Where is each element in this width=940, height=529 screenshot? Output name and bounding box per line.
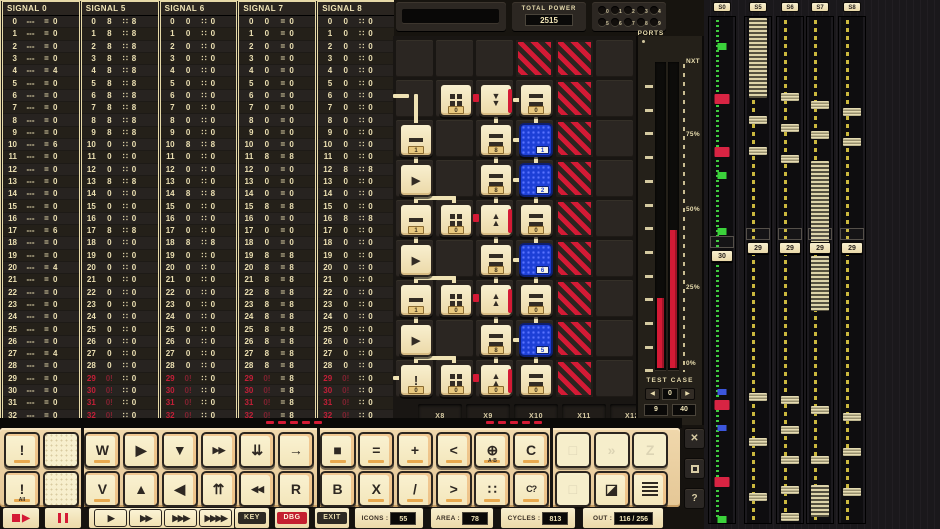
signal-row-index: 15 bbox=[239, 202, 256, 211]
signal-row-separator: = bbox=[41, 152, 52, 161]
signal-row: 270∷0 bbox=[161, 348, 237, 359]
signal-row-input: --- bbox=[20, 361, 41, 370]
tile-value-label: 0 bbox=[408, 386, 424, 394]
counter-value: 55 bbox=[390, 512, 416, 525]
signal-row: 21---=0 bbox=[3, 274, 79, 285]
key-frame-2[interactable]: □ bbox=[555, 471, 591, 507]
signal-row: 250∷0 bbox=[161, 323, 237, 334]
track-guide-line bbox=[846, 20, 849, 520]
port-socket[interactable]: 7 bbox=[624, 17, 637, 29]
track-value-badge[interactable]: 29 bbox=[809, 242, 831, 254]
track-value-badge[interactable]: 29 bbox=[841, 242, 863, 254]
signal-row-index: 31 bbox=[82, 398, 99, 407]
key-up[interactable]: ▲ bbox=[123, 471, 159, 507]
signal-row-index: 24 bbox=[3, 312, 20, 321]
signal-row-separator: ∷ bbox=[120, 263, 131, 272]
signal-row-separator: ∷ bbox=[199, 275, 210, 284]
signal-row-output: 0 bbox=[367, 398, 394, 407]
signal-row-index: 25 bbox=[82, 325, 99, 334]
key-frame[interactable]: □ bbox=[555, 432, 591, 468]
signal-row: 10=0 bbox=[239, 28, 315, 39]
signal-row-separator: ∷ bbox=[199, 17, 210, 26]
tile-blue[interactable]: 1 bbox=[519, 123, 553, 157]
signal-row-index: 3 bbox=[82, 54, 99, 63]
signal-row-index: 1 bbox=[161, 29, 178, 38]
signal-row-separator: ∷ bbox=[199, 349, 210, 358]
signal-row: 130=0 bbox=[239, 176, 315, 187]
signal-row-input: --- bbox=[20, 214, 41, 223]
tile-equals[interactable]: 0 bbox=[519, 203, 553, 237]
signal-row-index: 8 bbox=[82, 116, 99, 125]
key-combine[interactable]: ⊕A·B bbox=[474, 432, 510, 468]
speed-button-1[interactable]: ▶ bbox=[94, 509, 127, 527]
circuit-grid[interactable]: 0▼▼0181▶8210▲▲0▶8610▲▲0▶85!00▲▲00X8X9X10… bbox=[393, 36, 636, 425]
signal-row-index: 26 bbox=[82, 337, 99, 346]
key-skip[interactable]: » bbox=[594, 432, 630, 468]
grid-cell[interactable] bbox=[596, 80, 633, 117]
track-handle[interactable] bbox=[710, 236, 734, 248]
key-rewind[interactable]: ◀◀ bbox=[239, 471, 275, 507]
signal-row: 278=8 bbox=[239, 348, 315, 359]
test-case-prev-button[interactable]: ◀ bbox=[645, 388, 660, 400]
test-case-next-button[interactable]: ▶ bbox=[680, 388, 695, 400]
track-value-badge[interactable]: 29 bbox=[747, 242, 769, 254]
signal-row-index: 4 bbox=[239, 66, 256, 75]
signal-row-output: 0 bbox=[131, 325, 158, 334]
signal-row-output: 8 bbox=[288, 361, 315, 370]
signal-row-output: 0 bbox=[52, 251, 79, 260]
debug-badge[interactable]: DBG bbox=[277, 512, 306, 524]
tile-equals[interactable]: 8 bbox=[479, 243, 513, 277]
key-x[interactable]: X bbox=[358, 471, 394, 507]
signal-row: 50∷0 bbox=[318, 77, 394, 88]
app-root: SIGNAL 00---=01---=02---=03---=04---=45-… bbox=[0, 0, 940, 529]
signal-row-input: 0 bbox=[335, 275, 356, 284]
signal-row-separator: ∷ bbox=[199, 116, 210, 125]
port-socket[interactable]: 0 bbox=[598, 5, 611, 17]
signal-row-input: 0! bbox=[178, 386, 199, 395]
signal-row-output: 0 bbox=[52, 116, 79, 125]
signal-row-index: 2 bbox=[318, 42, 335, 51]
led-indicator bbox=[266, 421, 274, 424]
port-socket[interactable]: 1 bbox=[611, 5, 624, 17]
tile-equals[interactable]: 0 bbox=[519, 83, 553, 117]
track-handle[interactable] bbox=[746, 228, 770, 240]
signal-row-input: 8 bbox=[256, 263, 277, 272]
signal-row: 160∷0 bbox=[161, 213, 237, 224]
signal-row-index: 1 bbox=[239, 29, 256, 38]
signal-row: 270∷0 bbox=[82, 348, 158, 359]
gauge-scale-label: 50% bbox=[686, 206, 706, 213]
signal-row: 60=0 bbox=[239, 90, 315, 101]
signal-row: 180∷0 bbox=[318, 237, 394, 248]
blocked-cell[interactable] bbox=[556, 200, 593, 237]
track-header-s5: S5 bbox=[749, 2, 767, 12]
signal-row-output: 8 bbox=[131, 103, 158, 112]
signal-row: 290!∷0 bbox=[318, 373, 394, 384]
signal-row: 29---=0 bbox=[3, 373, 79, 384]
transport-pause[interactable] bbox=[44, 507, 82, 529]
track-handle[interactable] bbox=[808, 228, 832, 240]
key-underline-accent bbox=[14, 460, 30, 463]
port-hole-icon bbox=[611, 18, 619, 26]
signal-row-output: 8 bbox=[210, 140, 237, 149]
signal-row-separator: ∷ bbox=[120, 374, 131, 383]
signal-track-s6[interactable]: 29 bbox=[776, 16, 804, 524]
signal-row: 20=0 bbox=[239, 41, 315, 52]
key-contrast[interactable]: ◪ bbox=[594, 471, 630, 507]
signal-row-input: --- bbox=[20, 54, 41, 63]
blocked-cell[interactable] bbox=[556, 280, 593, 317]
signal-row-separator: ∷ bbox=[120, 251, 131, 260]
signal-row: 170∷0 bbox=[318, 225, 394, 236]
key-mode-badge-panel: KEY bbox=[234, 507, 270, 529]
blocked-cell[interactable] bbox=[516, 40, 553, 77]
port-socket[interactable]: 8 bbox=[637, 17, 650, 29]
signal-row-output: 0 bbox=[52, 238, 79, 247]
speed-button-4[interactable]: ▶▶▶▶ bbox=[199, 509, 232, 527]
port-number: 1 bbox=[619, 9, 622, 15]
signal-row-separator: ∷ bbox=[199, 374, 210, 383]
signal-row: 158=8 bbox=[239, 200, 315, 211]
key-left[interactable]: ◀ bbox=[162, 471, 198, 507]
signal-row-output: 0 bbox=[52, 214, 79, 223]
tile-chevup[interactable]: ▲▲0 bbox=[479, 363, 513, 397]
signal-row-input: --- bbox=[20, 202, 41, 211]
track-mark bbox=[718, 425, 727, 431]
grid-cell[interactable] bbox=[436, 40, 473, 77]
signal-row-index: 12 bbox=[82, 165, 99, 174]
port-hole-icon bbox=[611, 6, 619, 14]
display-inset bbox=[402, 9, 499, 23]
signal-row-separator: ∷ bbox=[356, 42, 367, 51]
gauge-tick bbox=[645, 275, 653, 278]
signal-row-output: 0 bbox=[367, 288, 394, 297]
signal-row-input: --- bbox=[20, 128, 41, 137]
signal-row: 220∷0 bbox=[161, 287, 237, 298]
grid-cell[interactable] bbox=[596, 40, 633, 77]
signal-row-input: 0 bbox=[256, 91, 277, 100]
signal-row-input: 0 bbox=[178, 116, 199, 125]
signal-track-s5[interactable]: 29 bbox=[744, 16, 772, 524]
key-dots[interactable]: ∷ bbox=[474, 471, 510, 507]
key-z[interactable]: Z bbox=[632, 432, 668, 468]
frame-button[interactable] bbox=[684, 458, 705, 479]
signal-track-s7[interactable]: 29 bbox=[806, 16, 834, 524]
signal-row: 38∷8 bbox=[82, 53, 158, 64]
signal-row-output: 0 bbox=[367, 17, 394, 26]
tile-chevup[interactable]: ▲▲ bbox=[479, 283, 513, 317]
blocked-cell[interactable] bbox=[556, 160, 593, 197]
signal-row-separator: ∷ bbox=[356, 189, 367, 198]
key-mode-badge[interactable]: KEY bbox=[238, 512, 266, 524]
signal-row-index: 21 bbox=[239, 275, 256, 284]
signal-row-output: 8 bbox=[131, 177, 158, 186]
track-handle[interactable] bbox=[840, 228, 864, 240]
led-strip bbox=[0, 418, 682, 428]
track-mark bbox=[843, 448, 861, 456]
close-button[interactable]: ✕ bbox=[684, 428, 705, 449]
exit-badge[interactable]: EXIT bbox=[317, 512, 347, 524]
gauge-tick bbox=[645, 132, 653, 135]
key-doc[interactable] bbox=[632, 471, 668, 507]
tile-arrow[interactable]: ▶ bbox=[399, 323, 433, 357]
key-c-question[interactable]: C? bbox=[513, 471, 549, 507]
tile-chevdown[interactable]: ▼▼ bbox=[479, 83, 513, 117]
grid-cell[interactable] bbox=[436, 240, 473, 277]
key-w[interactable]: W bbox=[84, 432, 120, 468]
key-less-than[interactable]: < bbox=[436, 432, 472, 468]
signal-row-input: 0 bbox=[178, 66, 199, 75]
signal-row-index: 5 bbox=[3, 79, 20, 88]
grid-cell[interactable] bbox=[596, 320, 633, 357]
signal-row-output: 0 bbox=[367, 177, 394, 186]
blocked-cell[interactable] bbox=[556, 80, 593, 117]
tile-blue[interactable]: 5 bbox=[519, 323, 553, 357]
blocked-cell[interactable] bbox=[556, 320, 593, 357]
signal-row-index: 8 bbox=[161, 116, 178, 125]
tile-minus[interactable]: 1 bbox=[399, 283, 433, 317]
key-underline-accent bbox=[523, 499, 539, 502]
port-socket[interactable]: 3 bbox=[637, 5, 650, 17]
blocked-cell[interactable] bbox=[556, 240, 593, 277]
track-mark bbox=[781, 396, 799, 404]
signal-row: 250∷0 bbox=[82, 323, 158, 334]
signal-row-output: 0 bbox=[131, 189, 158, 198]
signal-row-index: 13 bbox=[318, 177, 335, 186]
grid-cell[interactable] bbox=[596, 120, 633, 157]
signal-row-output: 0 bbox=[131, 152, 158, 161]
grid-cell[interactable] bbox=[596, 200, 633, 237]
signal-row: 130∷0 bbox=[318, 176, 394, 187]
grid-cell[interactable] bbox=[396, 40, 433, 77]
grid-cell[interactable] bbox=[596, 280, 633, 317]
key-double-up[interactable]: ⇈ bbox=[201, 471, 237, 507]
signal-row: 28---=0 bbox=[3, 360, 79, 371]
signal-row-output: 0 bbox=[288, 140, 315, 149]
signal-row-index: 5 bbox=[239, 79, 256, 88]
tile-excl[interactable]: !0 bbox=[399, 363, 433, 397]
gauge-tick bbox=[645, 180, 653, 183]
signal-row-input: 0 bbox=[178, 288, 199, 297]
signal-row-separator: ∷ bbox=[356, 116, 367, 125]
signal-row: 148∷8 bbox=[161, 188, 237, 199]
signal-row-input: 0! bbox=[178, 398, 199, 407]
port-socket[interactable]: 2 bbox=[624, 5, 637, 17]
grid-cell[interactable] bbox=[436, 160, 473, 197]
blocked-cell[interactable] bbox=[556, 40, 593, 77]
tile-grid4[interactable]: 0 bbox=[439, 283, 473, 317]
track-header-s7: S7 bbox=[811, 2, 829, 12]
key-plus[interactable]: + bbox=[397, 432, 433, 468]
signal-row: 218=8 bbox=[239, 274, 315, 285]
signal-row-output: 0 bbox=[210, 263, 237, 272]
signal-row-output: 0 bbox=[367, 66, 394, 75]
double-up-icon: ▲▲ bbox=[492, 293, 501, 307]
key-down[interactable]: ▼ bbox=[162, 432, 198, 468]
track-mark bbox=[749, 147, 767, 155]
track-handle[interactable] bbox=[778, 228, 802, 240]
signal-row-output: 0 bbox=[131, 288, 158, 297]
signal-row-separator: ∷ bbox=[120, 398, 131, 407]
help-button[interactable]: ? bbox=[684, 488, 705, 509]
key-sublabel: All bbox=[19, 497, 25, 503]
signal-row: 00∷0 bbox=[161, 16, 237, 27]
signal-row-separator: ∷ bbox=[356, 386, 367, 395]
signal-row-output: 0 bbox=[131, 214, 158, 223]
key-right[interactable]: → bbox=[278, 432, 314, 468]
port-socket[interactable]: 6 bbox=[611, 17, 624, 29]
speed-button-2[interactable]: ▶▶ bbox=[129, 509, 162, 527]
transport-stop-play[interactable]: ▶ bbox=[2, 507, 40, 529]
signal-row: 5---=0 bbox=[3, 77, 79, 88]
signal-row-output: 0 bbox=[52, 165, 79, 174]
signal-row-separator: ∷ bbox=[356, 140, 367, 149]
key-slash[interactable]: / bbox=[397, 471, 433, 507]
key-double-down[interactable]: ⇊ bbox=[239, 432, 275, 468]
track-mark bbox=[718, 516, 727, 523]
signal-row-index: 24 bbox=[318, 312, 335, 321]
signal-row-index: 26 bbox=[318, 337, 335, 346]
signal-row-output: 8 bbox=[288, 288, 315, 297]
signal-row-output: 8 bbox=[131, 91, 158, 100]
signal-row: 190∷0 bbox=[318, 250, 394, 261]
signal-row-input: 0 bbox=[256, 66, 277, 75]
key-b[interactable]: B bbox=[320, 471, 356, 507]
key-exclaim-all[interactable]: !All bbox=[4, 471, 40, 507]
signal-row-input: 0 bbox=[256, 128, 277, 137]
signal-row-output: 0 bbox=[288, 165, 315, 174]
signal-row-input: --- bbox=[20, 300, 41, 309]
key-equals[interactable]: = bbox=[358, 432, 394, 468]
signal-row-separator: ∷ bbox=[120, 165, 131, 174]
key-play[interactable]: ▶ bbox=[123, 432, 159, 468]
grid-cell[interactable] bbox=[596, 360, 633, 397]
track-value-badge[interactable]: 30 bbox=[711, 250, 733, 262]
key-stop[interactable]: ■ bbox=[320, 432, 356, 468]
signal-row-index: 7 bbox=[318, 103, 335, 112]
signal-row-input: 0 bbox=[335, 226, 356, 235]
signal-row-index: 26 bbox=[239, 337, 256, 346]
signal-row-input: --- bbox=[20, 349, 41, 358]
signal-row-index: 21 bbox=[318, 275, 335, 284]
port-number: 5 bbox=[606, 21, 609, 27]
signal-row-output: 0 bbox=[52, 312, 79, 321]
signal-row-input: 0 bbox=[178, 349, 199, 358]
signal-track-s0[interactable]: 30 bbox=[708, 16, 736, 524]
tile-minus[interactable]: 1 bbox=[399, 203, 433, 237]
tile-equals[interactable]: 0 bbox=[519, 283, 553, 317]
signal-row-output: 0 bbox=[288, 54, 315, 63]
tile-arrow[interactable]: ▶ bbox=[399, 243, 433, 277]
tile-equals[interactable]: 0 bbox=[519, 363, 553, 397]
key-r[interactable]: R bbox=[278, 471, 314, 507]
signal-row-index: 13 bbox=[239, 177, 256, 186]
signal-row: 238=8 bbox=[239, 299, 315, 310]
tile-equals[interactable]: 8 bbox=[479, 323, 513, 357]
signal-row-input: --- bbox=[20, 66, 41, 75]
signal-row: 150∷0 bbox=[318, 200, 394, 211]
key-fast-forward[interactable]: ▶▶ bbox=[201, 432, 237, 468]
signal-row-input: 0 bbox=[335, 54, 356, 63]
tile-grid4[interactable]: 0 bbox=[439, 203, 473, 237]
signal-row: 198=8 bbox=[239, 250, 315, 261]
key-glyph: » bbox=[608, 442, 616, 458]
signal-row-separator: ∷ bbox=[199, 300, 210, 309]
key-blank-1[interactable] bbox=[43, 432, 79, 468]
signal-row-separator: ∷ bbox=[356, 177, 367, 186]
track-mark bbox=[781, 155, 799, 163]
signal-row-separator: ∷ bbox=[199, 325, 210, 334]
tile-value-label: 0 bbox=[528, 386, 544, 394]
signal-row: 18---=0 bbox=[3, 237, 79, 248]
grid-cell[interactable] bbox=[596, 160, 633, 197]
tile-blue[interactable]: 2 bbox=[519, 163, 553, 197]
signal-row-output: 0 bbox=[131, 251, 158, 260]
port-socket[interactable]: 4 bbox=[650, 5, 663, 17]
blocked-cell[interactable] bbox=[556, 360, 593, 397]
test-case-index: 0 bbox=[662, 388, 678, 400]
key-exclaim[interactable]: ! bbox=[4, 432, 40, 468]
signal-row-output: 0 bbox=[210, 91, 237, 100]
key-c[interactable]: C bbox=[513, 432, 549, 468]
tile-equals[interactable]: 8 bbox=[479, 163, 513, 197]
port-socket[interactable]: 9 bbox=[650, 17, 663, 29]
signal-row-input: --- bbox=[20, 189, 41, 198]
key-blank-2[interactable] bbox=[43, 471, 79, 507]
speed-button-3[interactable]: ▶▶▶ bbox=[164, 509, 197, 527]
signal-row-index: 22 bbox=[318, 288, 335, 297]
track-value-badge[interactable]: 29 bbox=[779, 242, 801, 254]
signal-row-index: 4 bbox=[161, 66, 178, 75]
grid-cell[interactable] bbox=[436, 320, 473, 357]
signal-row-separator: ∷ bbox=[199, 214, 210, 223]
tile-chevup[interactable]: ▲▲ bbox=[479, 203, 513, 237]
signal-row-input: --- bbox=[20, 238, 41, 247]
signal-row-separator: = bbox=[277, 300, 288, 309]
signal-row-index: 19 bbox=[318, 251, 335, 260]
grid-cell[interactable] bbox=[436, 120, 473, 157]
tile-equals[interactable]: 8 bbox=[479, 123, 513, 157]
counter-value: 78 bbox=[462, 512, 488, 525]
signal-row: 230∷0 bbox=[161, 299, 237, 310]
signal-row-output: 8 bbox=[210, 238, 237, 247]
signal-row: 30=0 bbox=[239, 53, 315, 64]
grid-cell[interactable] bbox=[596, 240, 633, 277]
blocked-cell[interactable] bbox=[556, 120, 593, 157]
grid-cell[interactable] bbox=[476, 40, 513, 77]
play-icon: ▶ bbox=[22, 513, 30, 524]
signal-row-output: 0 bbox=[210, 66, 237, 75]
tile-blue[interactable]: 6 bbox=[519, 243, 553, 277]
signal-row-output: 4 bbox=[52, 263, 79, 272]
tile-grid4[interactable]: 0 bbox=[439, 363, 473, 397]
tile-arrow[interactable]: ▶ bbox=[399, 163, 433, 197]
signal-row-input: --- bbox=[20, 312, 41, 321]
tile-grid4[interactable]: 0 bbox=[439, 83, 473, 117]
port-socket[interactable]: 5 bbox=[598, 17, 611, 29]
tile-minus[interactable]: 1 bbox=[399, 123, 433, 157]
signal-track-s8[interactable]: 29 bbox=[838, 16, 866, 524]
key-v[interactable]: V bbox=[84, 471, 120, 507]
signal-row-output: 0 bbox=[367, 79, 394, 88]
signal-row-index: 17 bbox=[239, 226, 256, 235]
key-greater-than[interactable]: > bbox=[436, 471, 472, 507]
track-mark bbox=[715, 477, 730, 487]
signal-row-separator: = bbox=[277, 17, 288, 26]
signal-row-output: 0 bbox=[210, 165, 237, 174]
signal-row-index: 4 bbox=[82, 66, 99, 75]
